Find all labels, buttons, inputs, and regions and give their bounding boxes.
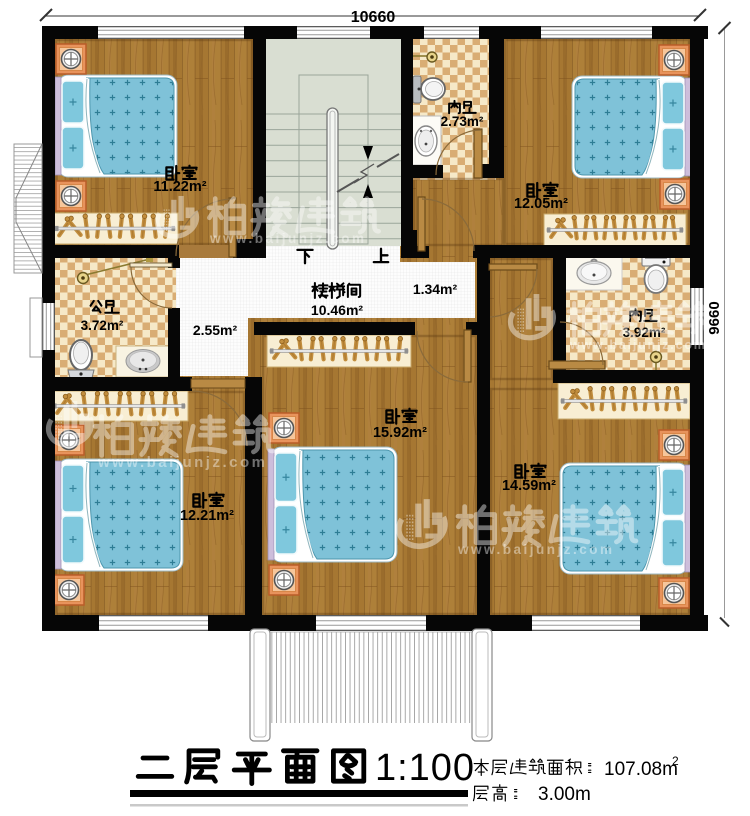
svg-text:2: 2 xyxy=(672,754,679,768)
svg-text:www.baijunjz.com: www.baijunjz.com xyxy=(97,454,267,471)
svg-text:www.baijunjz.com: www.baijunjz.com xyxy=(569,338,707,352)
svg-text:2.73m²: 2.73m² xyxy=(441,114,484,129)
svg-text:3.72m²: 3.72m² xyxy=(81,318,124,333)
svg-text:15.92m²: 15.92m² xyxy=(373,425,427,441)
svg-text:3.00m: 3.00m xyxy=(538,784,591,805)
svg-text:107.08m: 107.08m xyxy=(604,759,678,780)
svg-text:14.59m²: 14.59m² xyxy=(502,478,556,494)
svg-text:2.55m²: 2.55m² xyxy=(193,322,238,338)
svg-text:12.05m²: 12.05m² xyxy=(514,196,568,212)
svg-text:12.21m²: 12.21m² xyxy=(180,508,234,524)
svg-text:11.22m²: 11.22m² xyxy=(153,179,206,195)
svg-text:www.baijunjz.com: www.baijunjz.com xyxy=(457,542,615,557)
svg-text:9660: 9660 xyxy=(706,301,723,334)
svg-text:10.46m²: 10.46m² xyxy=(311,302,363,318)
svg-text:10660: 10660 xyxy=(351,9,396,26)
svg-text:1.34m²: 1.34m² xyxy=(413,281,458,297)
svg-text:www.baijunjz.com: www.baijunjz.com xyxy=(209,231,367,246)
svg-text:1:100: 1:100 xyxy=(375,747,475,789)
